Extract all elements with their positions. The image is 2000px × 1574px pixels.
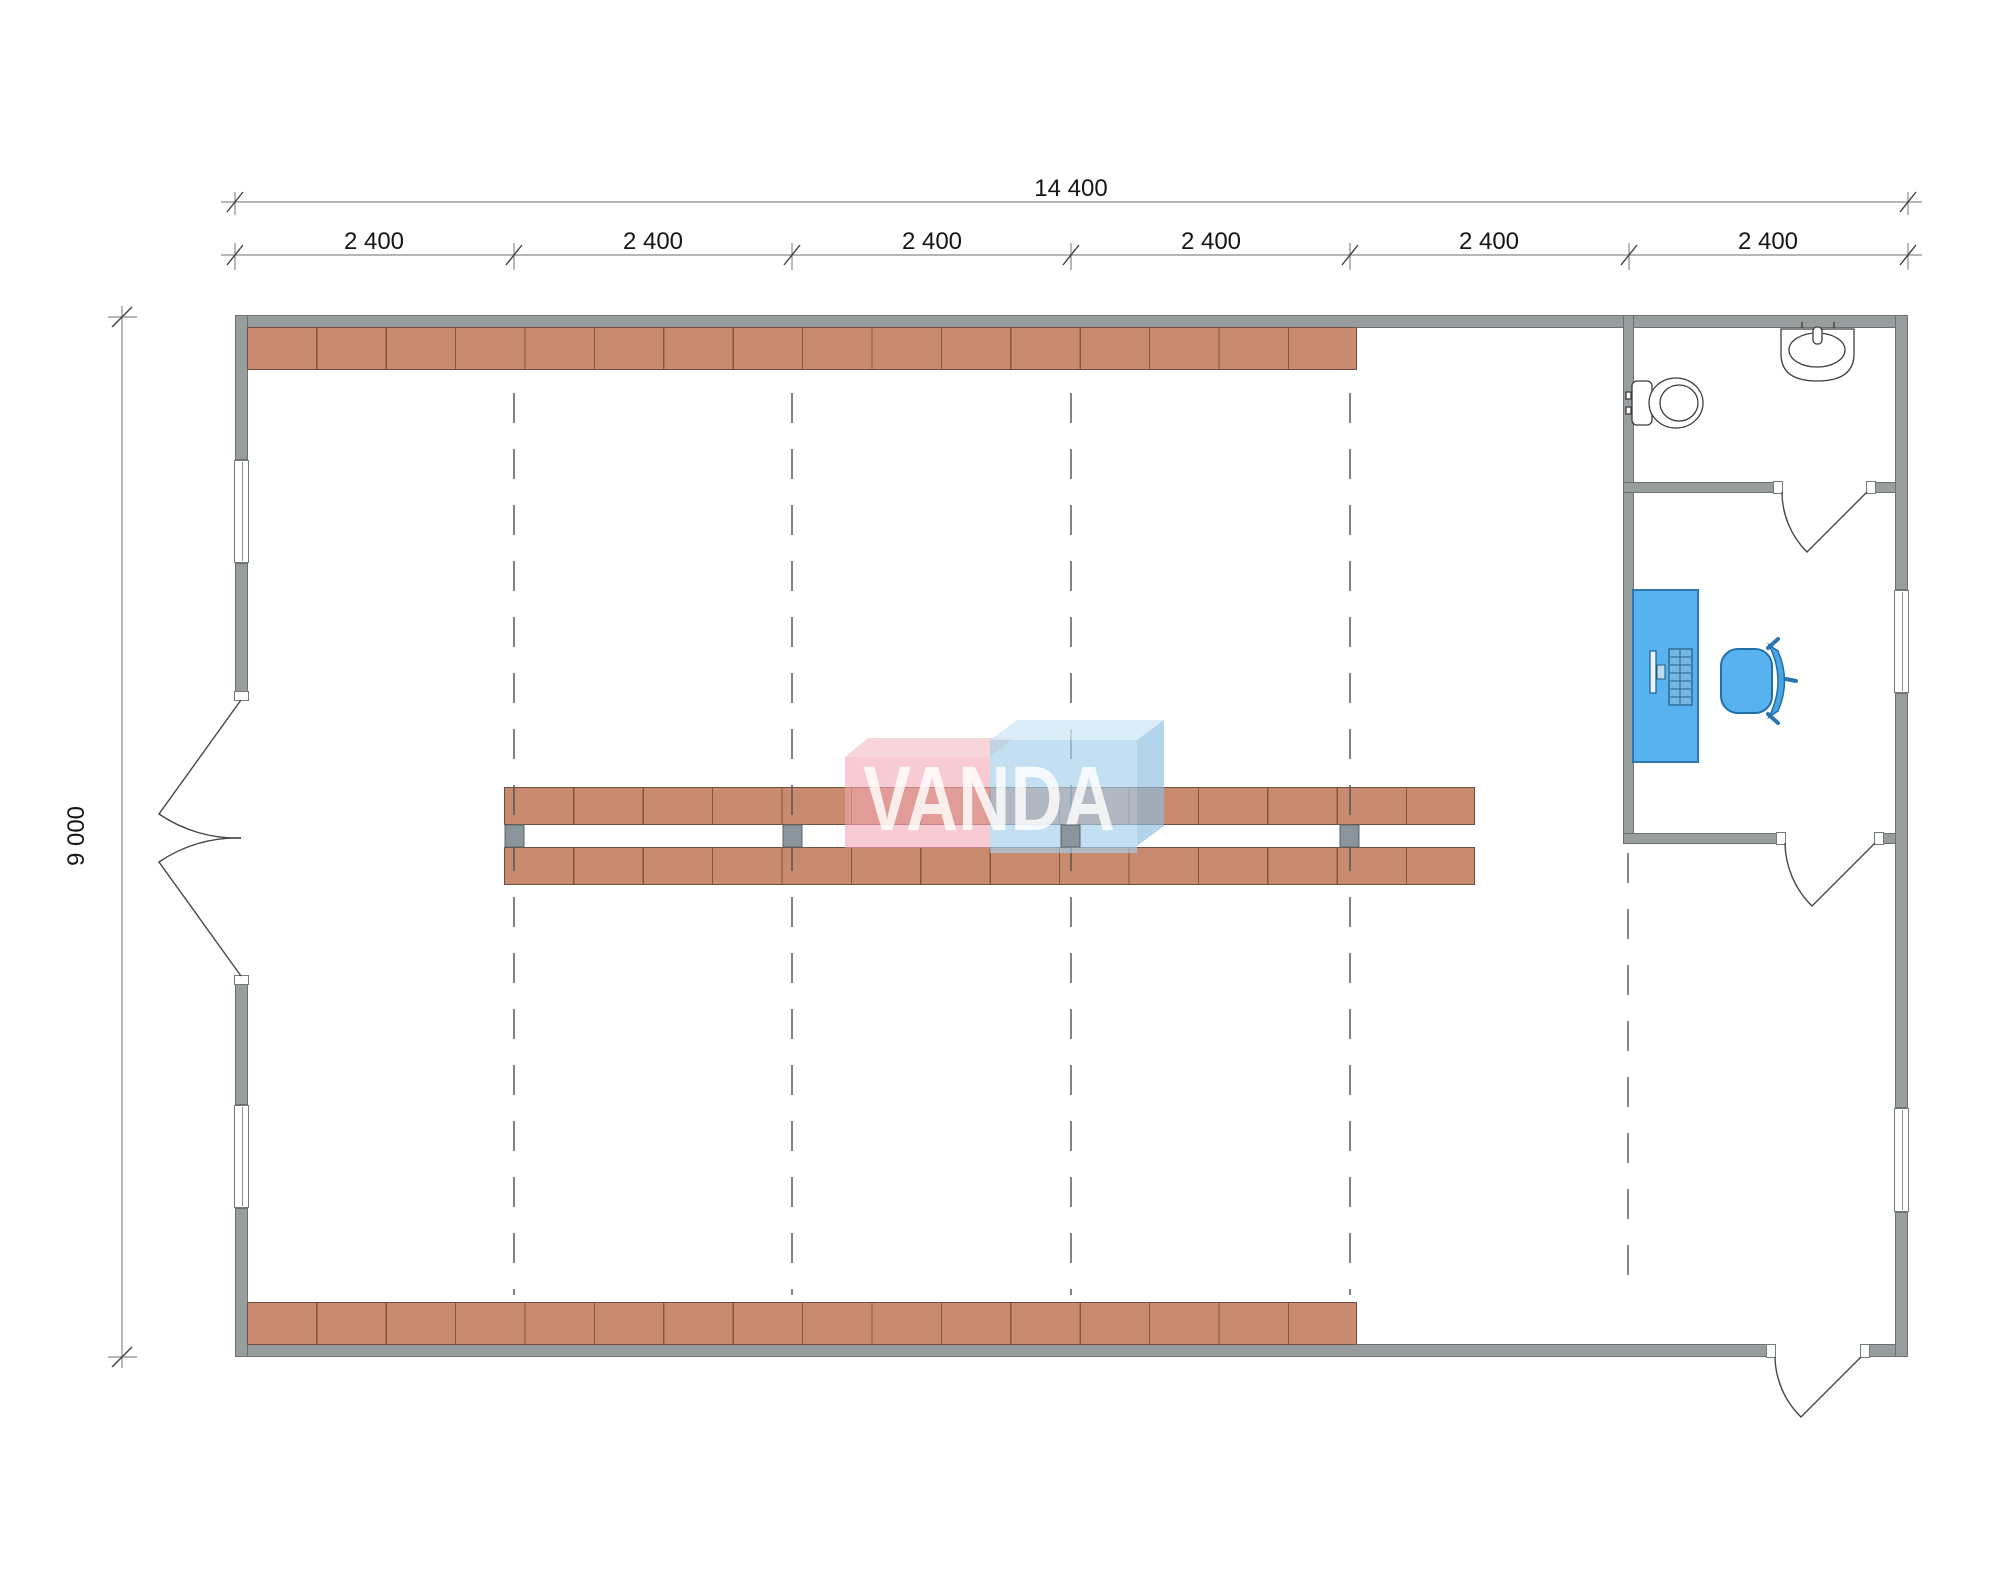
window-glass [242, 1107, 243, 1206]
wall-left-segment-3 [235, 976, 248, 1105]
toilet-bowl [1649, 378, 1703, 428]
keyboard-icon [1669, 649, 1692, 705]
sink-icon [1781, 322, 1854, 381]
shelf-row-bottom-wall [247, 1302, 1357, 1345]
window-left-upper [234, 460, 249, 563]
wall-right-segment-3 [1895, 1212, 1908, 1357]
window-glass [1902, 592, 1903, 691]
jamb-exit-left [1766, 1344, 1776, 1358]
doors [159, 492, 1875, 1417]
jamb-exit-right [1860, 1344, 1870, 1358]
jamb-bathroom-left [1773, 481, 1783, 494]
shelf-connector [1061, 825, 1080, 847]
jamb-bathroom-right [1866, 481, 1876, 494]
window-left-lower [234, 1105, 249, 1208]
bathroom-door [1782, 492, 1867, 552]
wall-left-segment-2 [235, 563, 248, 700]
dim-total-width-label: 14 400 [1034, 175, 1107, 202]
shelf-connectors [505, 825, 1359, 847]
monitor-stand [1657, 665, 1665, 679]
sink-basin-outer [1781, 329, 1854, 381]
jamb-office-right [1874, 832, 1884, 845]
desk-top [1633, 590, 1698, 762]
chair-seat [1721, 649, 1772, 713]
jamb-entry-lower [234, 975, 249, 985]
shelf-row-center-upper [504, 787, 1475, 825]
shelf-connector [1340, 825, 1359, 847]
dim-bay-label-4: 2 400 [1181, 228, 1241, 255]
sink-basin-inner [1789, 333, 1845, 367]
keyboard-keys [1670, 650, 1691, 704]
shelf-connector [505, 825, 524, 847]
toilet-bowl-inner [1660, 385, 1698, 421]
dim-total-height-label: 9 000 [63, 806, 90, 866]
chair-arm [1768, 639, 1778, 648]
entry-double-door-upper-leaf [159, 700, 241, 838]
dim-bay-label-5: 2 400 [1459, 228, 1519, 255]
watermark-pink-box-top [845, 738, 1013, 757]
wall-bathroom-divider [1623, 482, 1782, 493]
jamb-entry-upper [234, 691, 249, 701]
entry-double-door-lower-leaf [159, 838, 241, 976]
shelf-row-top-wall [247, 327, 1357, 370]
window-glass [1902, 1110, 1903, 1210]
watermark-blue-box-side [1137, 720, 1164, 846]
sink-faucet [1813, 327, 1822, 344]
shelf-row-center-lower [504, 847, 1475, 885]
shelf-connector [783, 825, 802, 847]
chair-backrest [1769, 645, 1785, 717]
floor-plan-canvas: VANDA [0, 0, 2000, 1574]
toilet-icon [1626, 378, 1703, 428]
wall-right-segment-2 [1895, 693, 1908, 1108]
exit-door [1775, 1357, 1861, 1417]
dim-bay-label-2: 2 400 [623, 228, 683, 255]
office-chair-icon [1721, 639, 1796, 723]
grid-lines [514, 393, 1628, 1295]
chair-arm [1786, 679, 1796, 681]
dim-bay-label-3: 2 400 [902, 228, 962, 255]
watermark-blue-box-top [990, 720, 1164, 740]
wall-office-bottom [1623, 833, 1785, 844]
wall-right-segment-1 [1895, 315, 1908, 590]
window-right-lower [1894, 1108, 1909, 1212]
jamb-office-left [1776, 832, 1786, 845]
chair-arm [1768, 714, 1778, 723]
monitor-icon [1650, 651, 1656, 693]
toilet-tank [1632, 381, 1652, 425]
window-glass [242, 462, 243, 561]
desk-icon [1633, 590, 1698, 762]
dim-bay-label-6: 2 400 [1738, 228, 1798, 255]
office-door [1785, 843, 1875, 906]
wall-bottom-left-segment [235, 1344, 1775, 1357]
window-right-office [1894, 590, 1909, 693]
wall-interior-vertical [1623, 315, 1634, 843]
dim-bay-label-1: 2 400 [344, 228, 404, 255]
